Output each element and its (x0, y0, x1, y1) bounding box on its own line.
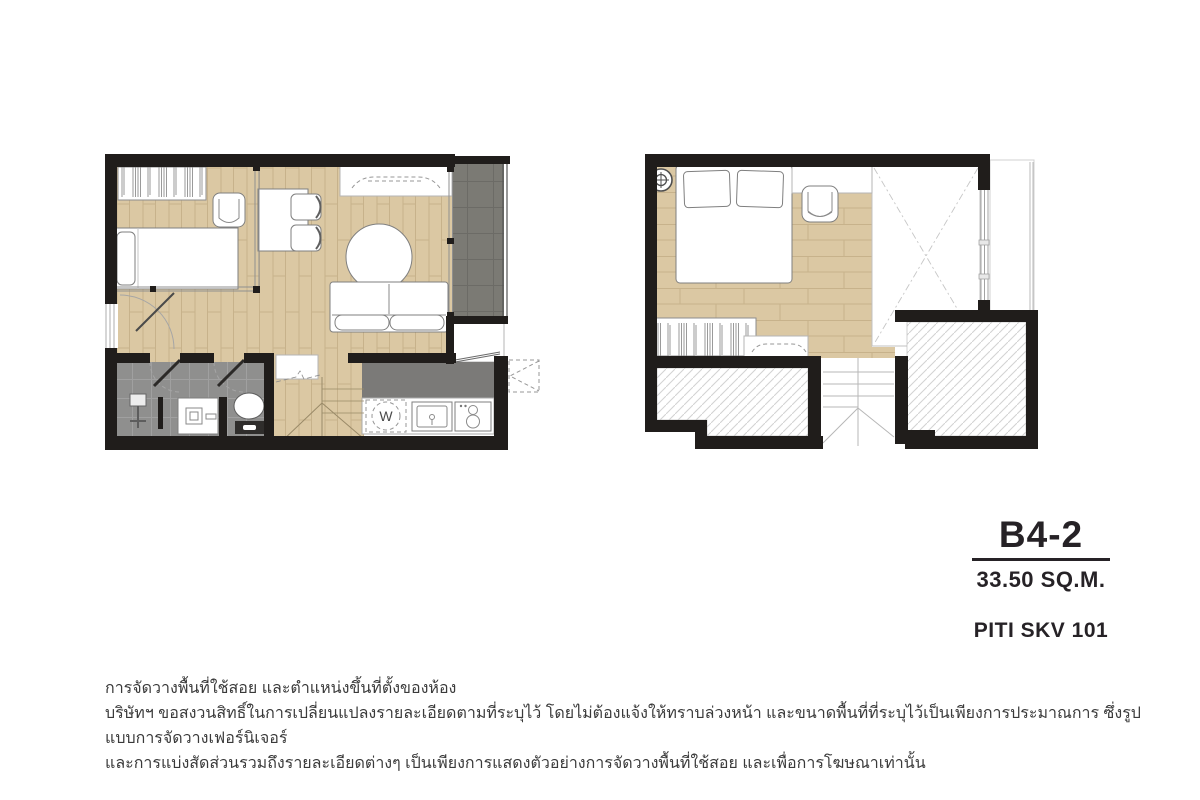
sofa-cushion (390, 315, 444, 330)
bedroom-window (104, 304, 118, 348)
floor-plan-page: W (0, 0, 1200, 800)
title-divider (972, 558, 1110, 561)
dining-set (258, 189, 321, 251)
sofa (330, 282, 448, 332)
title-block: B4-2 33.50 SQ.M. PITI SKV 101 (972, 516, 1110, 643)
disclaimer-line-2: บริษัทฯ ขอสงวนสิทธิ์ในการเปลี่ยนแปลงรายล… (105, 701, 1165, 751)
disclaimer-line-3: และการแบ่งสัดส่วนรวมถึงรายละเอียดต่างๆ เ… (105, 751, 1165, 776)
washer-label: W (379, 408, 393, 424)
balcony (452, 164, 504, 318)
tv-console-upper (744, 336, 808, 357)
sofa-cushion (335, 315, 389, 330)
stove (455, 402, 491, 431)
lower-floor-plan: W (104, 154, 539, 450)
balcony-rail (503, 164, 507, 318)
bedside-chair (802, 186, 838, 222)
project-name: PITI SKV 101 (972, 619, 1110, 643)
tv-console (340, 166, 452, 196)
round-table (346, 224, 412, 290)
wardrobe (118, 167, 206, 200)
double-bed (676, 165, 792, 283)
kitchen-floor (362, 362, 495, 400)
kitchen-sink (412, 402, 452, 431)
wardrobe-upper (652, 318, 756, 356)
kitchen-counter: W (362, 398, 494, 434)
washbasin (178, 398, 218, 434)
bedroom-chair (213, 193, 245, 227)
unit-model: B4-2 (972, 516, 1110, 554)
ac-unit (509, 360, 539, 392)
single-bed (114, 228, 238, 289)
disclaimer: การจัดวางพื้นที่ใช้สอย และตำแหน่งขึ้นที่… (105, 676, 1165, 776)
upper-floor-plan (645, 154, 1038, 449)
disclaimer-line-1: การจัดวางพื้นที่ใช้สอย และตำแหน่งขึ้นที่… (105, 676, 1165, 701)
unit-area: 33.50 SQ.M. (972, 567, 1110, 593)
hatch-area-right (907, 322, 1026, 436)
pillow (736, 170, 783, 208)
stair-cabinet (276, 355, 318, 379)
pillow (683, 170, 730, 208)
stairs-upper (820, 358, 895, 448)
double-height-strip (990, 160, 1034, 312)
pillow (117, 232, 135, 285)
toilet (234, 393, 264, 434)
